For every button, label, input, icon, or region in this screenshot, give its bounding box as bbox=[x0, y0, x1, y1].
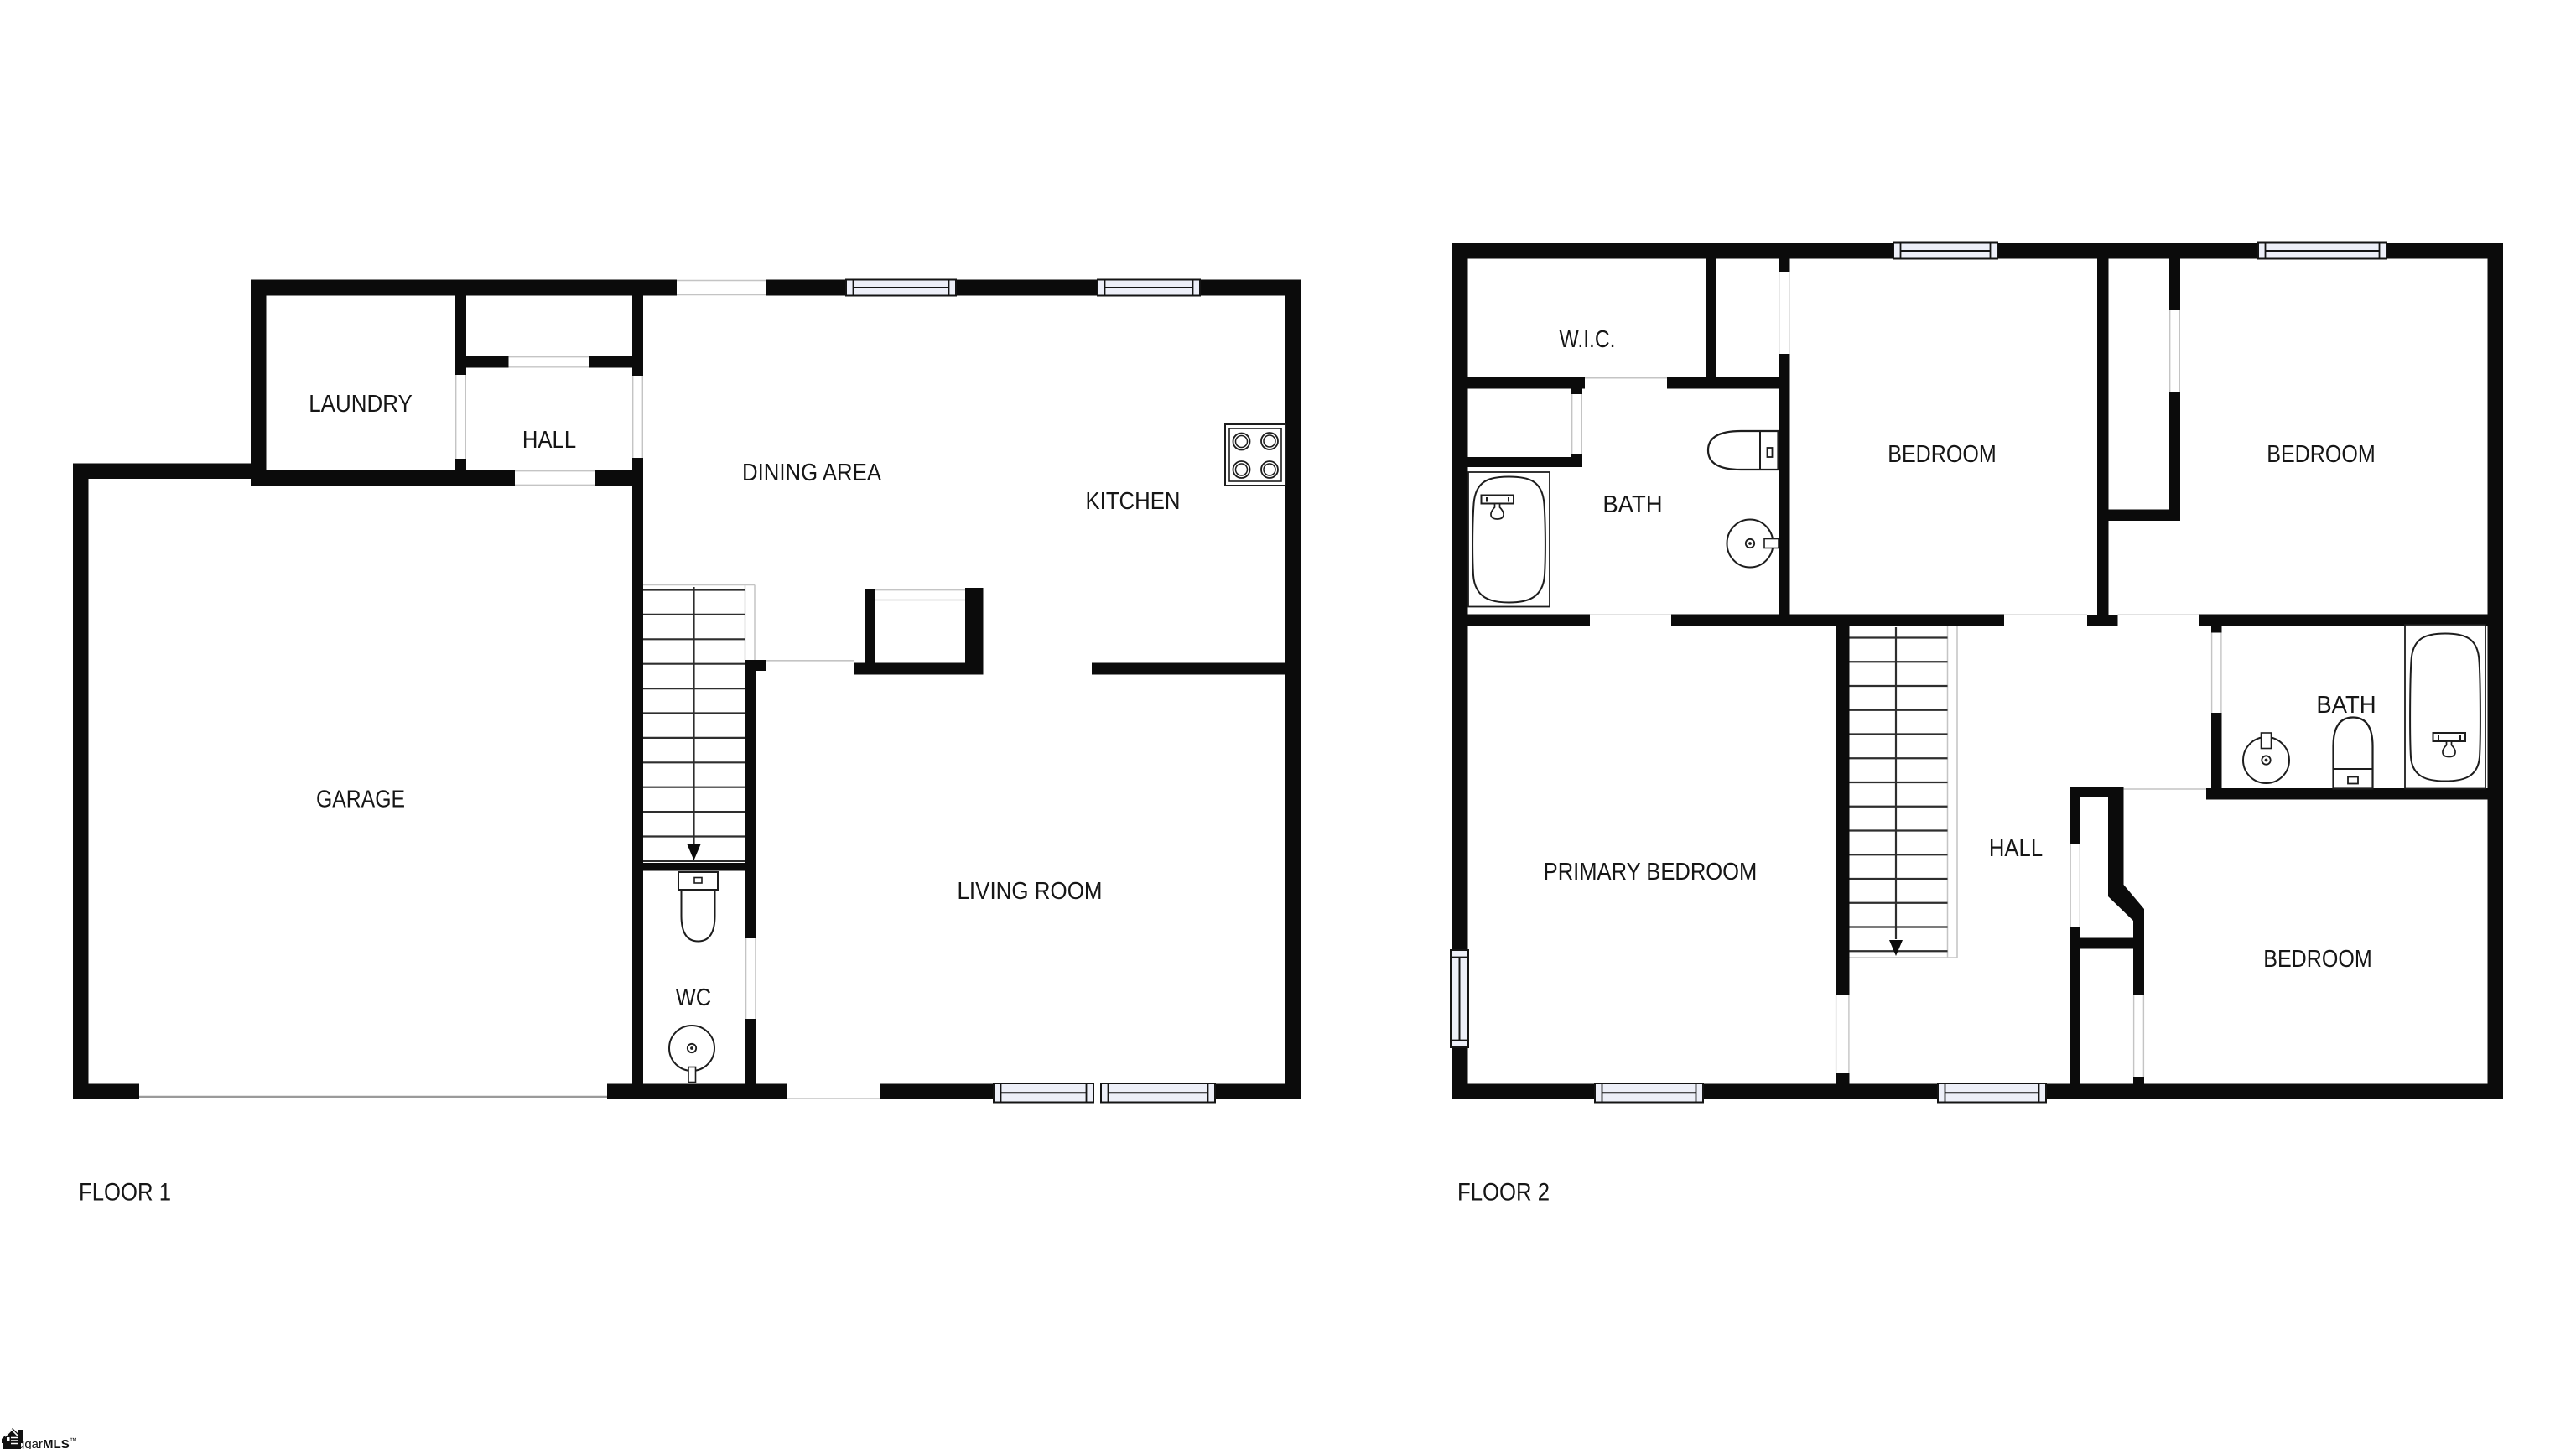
svg-text:FLOOR 2: FLOOR 2 bbox=[1457, 1179, 1550, 1207]
svg-text:WC: WC bbox=[676, 984, 711, 1011]
svg-text:W.I.C.: W.I.C. bbox=[1560, 326, 1616, 353]
svg-text:BATH: BATH bbox=[1602, 491, 1662, 518]
svg-text:GARAGE: GARAGE bbox=[316, 787, 405, 813]
svg-text:BEDROOM: BEDROOM bbox=[1888, 441, 1997, 468]
svg-text:BEDROOM: BEDROOM bbox=[2267, 441, 2376, 468]
svg-text:DINING AREA: DINING AREA bbox=[742, 460, 882, 486]
svg-text:LAUNDRY: LAUNDRY bbox=[309, 391, 413, 418]
svg-text:BATH: BATH bbox=[2316, 692, 2376, 719]
svg-text:HALL: HALL bbox=[522, 427, 576, 454]
svg-text:KITCHEN: KITCHEN bbox=[1086, 488, 1181, 515]
svg-text:ggarMLS™: ggarMLS™ bbox=[18, 1436, 77, 1449]
svg-text:HALL: HALL bbox=[1989, 835, 2043, 862]
svg-text:LIVING ROOM: LIVING ROOM bbox=[958, 878, 1103, 905]
svg-text:BEDROOM: BEDROOM bbox=[2263, 946, 2372, 973]
svg-text:FLOOR 1: FLOOR 1 bbox=[79, 1179, 171, 1207]
svg-text:PRIMARY BEDROOM: PRIMARY BEDROOM bbox=[1544, 859, 1758, 885]
